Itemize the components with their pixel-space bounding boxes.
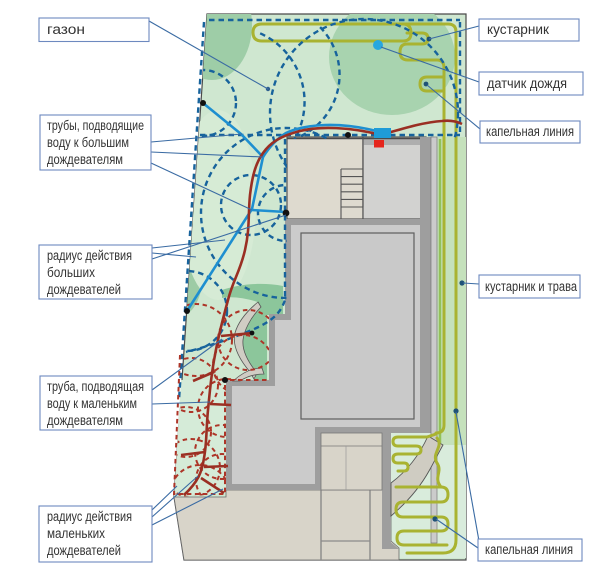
svg-text:кустарник и трава: кустарник и трава [485, 279, 577, 294]
svg-text:больших: больших [47, 265, 95, 280]
svg-text:газон: газон [47, 22, 85, 37]
svg-text:трубы, подводящие: трубы, подводящие [47, 118, 144, 133]
svg-text:дождевателям: дождевателям [47, 152, 123, 167]
svg-text:капельная линия: капельная линия [485, 542, 573, 557]
svg-text:труба, подводящая: труба, подводящая [47, 379, 144, 394]
svg-text:капельная линия: капельная линия [486, 124, 574, 139]
svg-text:маленьких: маленьких [47, 526, 105, 541]
svg-text:радиус действия: радиус действия [47, 509, 132, 524]
svg-text:кустарник: кустарник [487, 22, 549, 37]
svg-text:дождевателям: дождевателям [47, 413, 123, 428]
svg-text:воду к маленьким: воду к маленьким [47, 396, 137, 411]
svg-text:воду к большим: воду к большим [47, 135, 129, 150]
svg-text:радиус действия: радиус действия [47, 248, 132, 263]
svg-text:датчик дождя: датчик дождя [487, 76, 567, 91]
svg-text:дождевателей: дождевателей [47, 282, 121, 297]
svg-text:дождевателей: дождевателей [47, 543, 121, 558]
